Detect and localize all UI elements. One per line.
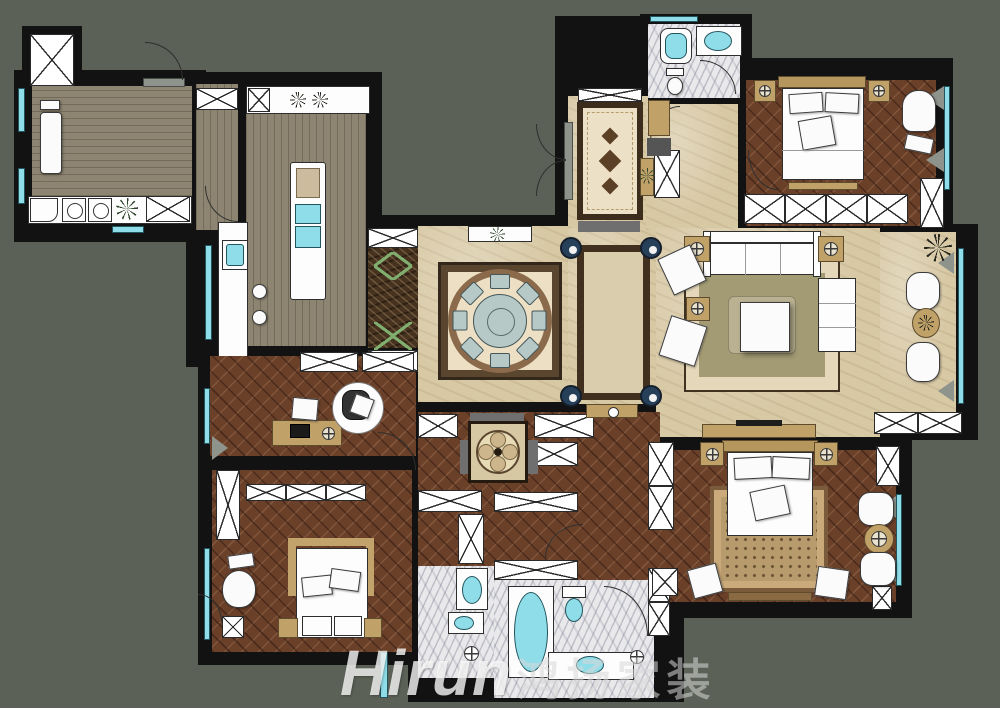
plant-balcony-icon	[924, 234, 952, 262]
wardrobe-master-1	[648, 442, 674, 486]
master-armchair-2	[860, 552, 896, 586]
closet-hall-mid-left	[418, 490, 482, 512]
sink1-basin	[704, 31, 732, 51]
sink2-basin	[462, 576, 482, 604]
medallion-petal	[502, 444, 518, 460]
master-armchair-1	[858, 492, 894, 526]
closet-bedroom2-1	[246, 484, 286, 501]
elevator-shaft	[30, 34, 74, 86]
wardrobe-bedroom1-2	[785, 194, 826, 224]
toilet2-bowl	[454, 616, 474, 630]
compass-marker	[873, 85, 885, 97]
closet-bedroom2-3	[326, 484, 366, 501]
compass-marker	[824, 242, 838, 256]
balcony-chair-1	[906, 272, 940, 310]
laundry-ironing-board	[40, 112, 62, 174]
sofa-cushion-line	[745, 244, 746, 275]
island-sink-1	[295, 204, 321, 224]
threshold-zigzag-4	[374, 336, 412, 350]
bed2-drawer-1	[302, 616, 332, 636]
wardrobe-bedroom1-1	[744, 194, 785, 224]
closet-kitchen-corner	[248, 88, 270, 112]
tv-console	[702, 424, 816, 438]
washing-machine-1	[62, 198, 86, 222]
chaise-line	[819, 303, 856, 304]
master-headboard	[722, 440, 818, 452]
wall-foyer-mass	[555, 16, 650, 96]
closet-study-2	[362, 352, 414, 372]
closet-masterbath-2	[648, 602, 670, 636]
entry-door-arc-1	[536, 124, 566, 160]
closet-bedroom2-2	[286, 484, 326, 501]
corridor-console	[586, 404, 638, 418]
foyer-rug	[577, 102, 643, 220]
master-bench	[728, 592, 812, 601]
wardrobe-master-2	[648, 486, 674, 530]
closet-hall-top-right	[534, 414, 594, 438]
medallion-petal	[490, 456, 506, 472]
bedroom2-lounge-chair	[222, 570, 256, 608]
window-balcony	[958, 248, 964, 404]
threshold-zigzag-2	[374, 266, 412, 280]
window-laundry-bottom	[112, 226, 144, 233]
closet-master-right	[876, 446, 900, 486]
window-kitchen-west	[205, 245, 212, 340]
compass-marker	[820, 448, 833, 461]
closet-pantry	[196, 88, 238, 110]
closet-balcony-2	[918, 412, 962, 434]
compass-marker	[691, 302, 704, 315]
closet-study-left	[216, 470, 240, 540]
curtain-study	[212, 436, 228, 460]
watermark-brand: Hirun	[340, 637, 512, 708]
bed2-nightstand-right	[364, 618, 382, 638]
compass-marker	[871, 531, 887, 547]
closet-bedroom2-small	[222, 616, 244, 638]
bed1-bench	[788, 182, 858, 190]
window-bathroom1	[650, 16, 698, 22]
dining-chair	[490, 274, 510, 289]
closet-study-1	[300, 352, 358, 372]
bed1-throw	[798, 115, 837, 150]
closet-hall	[654, 150, 680, 198]
medallion-center	[494, 448, 502, 456]
hall-pillar-right	[528, 440, 538, 474]
coffee-table	[740, 302, 790, 352]
closet-hall-top-left	[418, 414, 458, 438]
hall-beam	[470, 413, 524, 421]
cutting-board	[296, 168, 320, 198]
balcony-chair-2	[906, 342, 940, 382]
closet-foyer-top	[578, 88, 642, 102]
watermark: Hirun 鸿扬家装	[340, 636, 1000, 708]
window-laundry-1	[18, 88, 25, 132]
dining-chair	[453, 311, 468, 331]
chaise-lounge	[818, 278, 856, 352]
compass-marker	[759, 85, 771, 97]
bedroom1-lounge-chair	[902, 90, 936, 132]
bed1-pillow	[788, 92, 823, 114]
floor-plan: Hirun 鸿扬家装	[0, 0, 1000, 708]
laundry-shelf	[40, 100, 60, 110]
compass-marker	[322, 427, 335, 440]
closet-passage-top	[368, 228, 418, 248]
compass-marker	[706, 448, 719, 461]
corridor-marble-panel	[577, 245, 650, 400]
closet-balcony-1	[874, 412, 918, 434]
plant-sideboard-icon	[490, 227, 505, 242]
sofa-back	[710, 231, 814, 243]
balcony-table-decor-icon	[918, 315, 934, 331]
closet-bedroom1-right	[920, 178, 944, 228]
wardrobe-bedroom1-3	[826, 194, 867, 224]
bed2-pillow	[329, 568, 361, 592]
chaise-line	[819, 327, 856, 328]
door-laundry-arc	[145, 42, 183, 80]
master-toilet-tank	[562, 586, 586, 598]
master-toilet-bowl	[565, 598, 583, 622]
column-marker	[640, 385, 662, 407]
threshold-foyer	[578, 221, 640, 232]
sofa-seat	[710, 243, 814, 275]
floor-medallion	[468, 421, 528, 483]
plant-laundry-icon	[116, 198, 138, 220]
window-laundry-2	[18, 168, 25, 204]
threshold-zigzag-3	[374, 322, 412, 336]
bed2-nightstand-left	[278, 618, 298, 638]
laptop	[290, 424, 310, 438]
washing-machine-2	[88, 198, 112, 222]
window-master	[896, 494, 902, 586]
bed1-headboard	[778, 76, 866, 88]
dining-table	[473, 294, 527, 348]
closet-hall-mid	[494, 492, 578, 512]
bed1-blanket-line	[782, 150, 864, 151]
column-marker	[560, 385, 582, 407]
closet-master-br	[872, 586, 892, 610]
kitchen-stool-2	[252, 310, 267, 325]
dining-chair	[490, 353, 510, 368]
master-ottoman-2	[814, 566, 850, 600]
plant-foyer-icon	[639, 168, 655, 184]
threshold-zigzag-1	[374, 252, 412, 266]
master-pillow	[771, 456, 810, 480]
column-marker	[640, 237, 662, 259]
closet-master-low	[652, 568, 678, 596]
laundry-sink-cabinet	[30, 198, 58, 222]
study-chair	[291, 397, 319, 421]
column-marker	[560, 237, 582, 259]
window-bedroom2	[204, 548, 210, 640]
dining-chair	[532, 311, 547, 331]
bathtub1	[665, 33, 687, 59]
hall-niche	[647, 138, 671, 156]
hall-cabinet	[648, 100, 670, 136]
window-study	[204, 388, 210, 444]
bed1-pillow	[824, 92, 859, 114]
wardrobe-bedroom1-4	[867, 194, 908, 224]
sofa-cushion-line	[780, 244, 781, 275]
medallion-petal	[478, 444, 494, 460]
toilet1-bowl	[667, 77, 683, 95]
bed2-drawer-2	[334, 616, 362, 636]
entry-door-arc-2	[536, 160, 566, 196]
island-sink-2	[295, 226, 321, 248]
stove-burner-icon-2	[312, 92, 328, 108]
tv-set	[736, 420, 782, 426]
toilet1-tank	[666, 68, 684, 76]
closet-hall-vertical	[458, 514, 484, 564]
closet-hall-low	[494, 560, 578, 580]
curtain-balcony-2	[938, 380, 954, 402]
stove-burner-icon-1	[290, 92, 306, 108]
closet-laundry	[146, 196, 190, 222]
window-bedroom1	[944, 86, 950, 190]
kitchen-stool-1	[252, 284, 267, 299]
watermark-company: 鸿扬家装	[517, 656, 717, 705]
counter-sink	[226, 244, 244, 266]
master-pillow	[733, 456, 772, 480]
